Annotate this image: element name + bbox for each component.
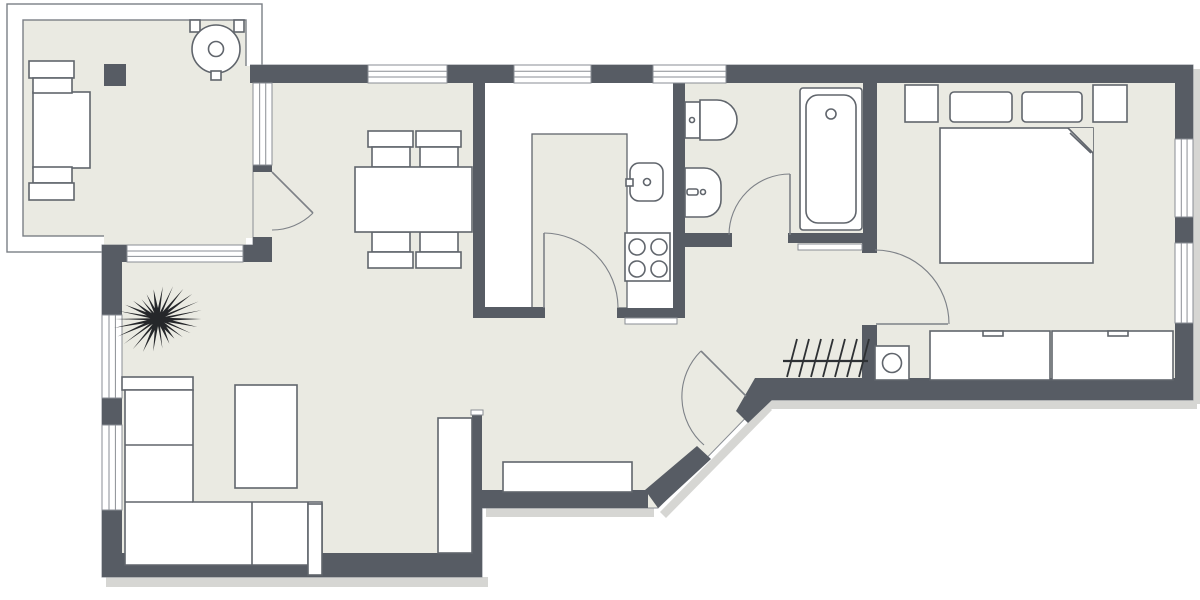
wardrobe-right [1052,331,1173,380]
stove-burner-1 [629,239,645,255]
wall-top-pier-2 [591,65,653,83]
bathroom-faucet [687,189,698,195]
stove-burner-2 [651,239,667,255]
bathtub-drain [826,109,836,119]
wall-kitchen-bottom-right [617,308,685,318]
dining-chair-3-back [368,252,413,268]
wardrobe-right-handle [1108,331,1128,336]
dining-chair-4-back [416,252,461,268]
dining-chair-1-back [368,131,413,147]
wall-balcony-sill [253,165,272,172]
wardrobe-left-handle [983,331,1003,336]
wall-bottom-bedroom [755,378,1193,400]
balcony-storage-box [104,64,126,86]
wall-right-mid [1175,217,1193,243]
toilet-bowl [700,100,737,140]
window-bedroom-right-lower [1175,243,1193,323]
dining-chair-2-back [416,131,461,147]
window-bedroom-right-upper [1175,139,1193,217]
grill-handle-left [190,20,200,32]
coffee-table [235,385,297,488]
wall-left-mid [102,398,122,425]
balcony-floor-patch-2 [104,235,246,245]
sofa-armrest [308,504,322,575]
window-living-left-upper [102,315,122,398]
wall-kitchen-bottom-left [473,307,545,318]
wall-under-balcony-left [102,245,127,262]
grill-tab [211,71,221,80]
dining-chair-4-seat [420,232,458,252]
stove-burner-4 [651,261,667,277]
floor-plan-svg [0,0,1200,600]
shadow-right-wall [1193,69,1200,404]
balcony-table [33,92,90,168]
tv-sideboard [438,418,472,553]
sofa-headrest [122,377,193,390]
wall-left-lower [102,510,122,553]
window-kitchen-top [514,65,591,83]
balcony-chair-bottom-seat [33,167,72,183]
kitchen-faucet [626,179,633,186]
wall-right-upper [1175,83,1193,139]
dining-table [355,167,472,232]
kitchen-doorway-floor [545,307,617,320]
window-living-top [368,65,447,83]
wall-bath-bottom-right [788,233,865,243]
washing-machine-door [883,354,902,373]
wall-bath-bedroom [863,83,877,233]
stove-burner-3 [629,261,645,277]
kitchen-sink-drain [644,179,651,186]
wall-balcony-pier [253,237,272,247]
hall-bench [503,462,632,492]
window-bath-top [653,65,726,83]
window-living-left-lower [102,425,122,510]
window-under-balcony [127,245,243,262]
threshold-bath [798,244,862,250]
dining-chair-2-seat [420,147,458,167]
wall-cap-living-hall [471,410,483,415]
shadow-bedroom-bottom [760,400,1197,409]
wardrobe-left [930,331,1050,380]
wall-bath-bottom-left [673,233,732,247]
floor-plan-canvas [0,0,1200,600]
dining-chair-1-seat [372,147,410,167]
wall-kitchen-living [473,83,485,317]
double-bed [940,128,1093,263]
balcony-chair-top-seat [33,78,72,93]
pillow-left [950,92,1012,122]
balcony-chair-top-back [29,61,74,78]
wall-top-right [726,65,1193,83]
dining-chair-3-seat [372,232,410,252]
threshold-kitchen [625,318,677,324]
grill-handle-right [234,20,244,32]
wall-top-living [250,65,368,83]
balcony-floor-patch-1 [240,66,253,238]
kitchen-floor-island [532,134,627,308]
wall-living-hall [472,413,482,553]
nightstand-left [905,85,938,122]
shadow-living-bottom [106,577,488,587]
shadow-hall-bottom [486,508,654,517]
toilet-button [690,118,695,123]
grill-knob [209,42,224,57]
bathroom-faucet-dot [701,190,706,195]
nightstand-right [1093,85,1127,122]
wall-kitchen-bath [673,83,685,318]
balcony-chair-bottom-back [29,183,74,200]
wall-top-pier-1 [447,65,514,83]
pillow-right [1022,92,1082,122]
window-balcony-side [253,83,272,165]
wall-under-balcony-right [243,245,272,262]
